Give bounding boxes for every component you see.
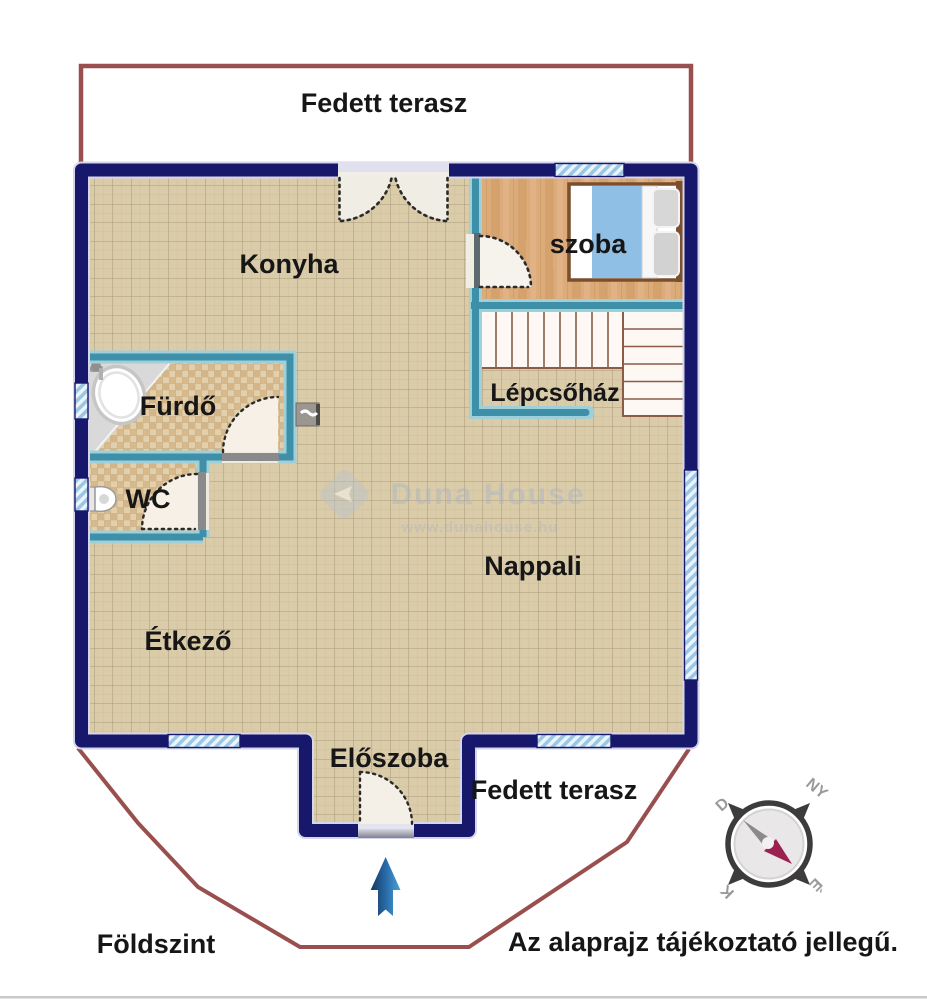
svg-text:Fedett terasz: Fedett terasz <box>471 775 638 805</box>
svg-text:Előszoba: Előszoba <box>330 743 450 773</box>
svg-text:Lépcsőház: Lépcsőház <box>490 379 619 407</box>
svg-text:WC: WC <box>126 484 171 514</box>
svg-text:Az alaprajz tájékoztató jelleg: Az alaprajz tájékoztató jellegű. <box>508 927 898 957</box>
svg-text:Fürdő: Fürdő <box>140 391 216 421</box>
svg-text:Étkező: Étkező <box>144 625 231 656</box>
svg-text:Fedett terasz: Fedett terasz <box>301 88 468 118</box>
svg-text:Földszint: Földszint <box>97 929 215 959</box>
svg-text:Duna House: Duna House <box>390 478 585 511</box>
svg-text:Nappali: Nappali <box>484 551 582 581</box>
svg-text:www.dunahouse.hu: www.dunahouse.hu <box>400 519 558 536</box>
svg-text:szoba: szoba <box>550 229 628 259</box>
svg-text:Konyha: Konyha <box>239 249 339 279</box>
